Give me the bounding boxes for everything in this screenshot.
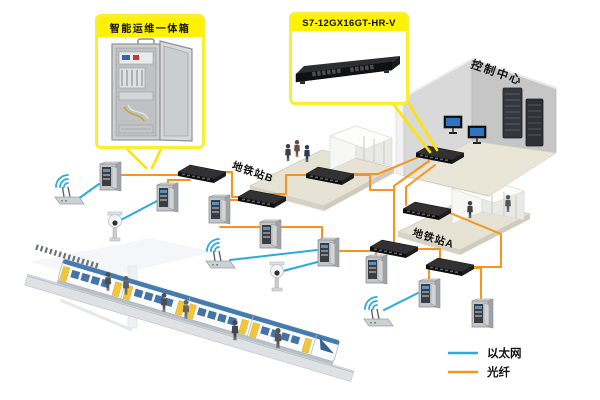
fiber-wire [470,268,481,298]
wifi-access-point-icon [364,297,393,326]
ethernet-line-swatch [448,350,478,356]
concourse-floor [30,238,214,280]
legend: 以太网 光纤 [448,343,522,381]
network-topology-diagram: 智能运维一体箱 S7-12GX16GT-HR-V [0,0,600,400]
cabinet-callout-label: 智能运维一体箱 [98,17,202,37]
wifi-access-point-icon [55,175,84,204]
switch-callout-label: S7-12GX16GT-HR-V [292,15,406,31]
rack-switch-icon [292,31,406,97]
ethernet-wire [230,250,317,260]
cabinet-callout: 智能运维一体箱 [95,14,205,149]
wall-mount-cabinet-icon [209,195,230,224]
ethernet-wire [78,184,99,199]
server-rack-icon [503,88,522,138]
legend-label-ethernet: 以太网 [487,345,522,361]
wall-mount-cabinet-icon [260,220,281,249]
ethernet-wire [384,293,418,310]
wall-mount-cabinet-icon [100,162,121,191]
metro-train-icon [25,250,361,381]
wall-mount-cabinet-icon [366,255,387,284]
ptz-camera-icon [270,262,284,291]
metro-station-scene [25,238,361,382]
fiber-line-swatch [448,369,478,375]
legend-item-ethernet: 以太网 [448,343,522,362]
leader-line [152,149,161,168]
leader-line [127,149,146,168]
wall-mount-cabinet-icon [100,37,200,149]
switch-callout-graphic [292,31,406,97]
cabinet-callout-graphic [98,37,202,149]
switch-callout: S7-12GX16GT-HR-V [289,12,409,105]
wall-mount-cabinet-icon [157,183,178,212]
legend-item-fiber: 光纤 [448,362,522,381]
server-rack-icon [526,99,543,146]
wall-mount-cabinet-icon [472,299,493,328]
legend-label-fiber: 光纤 [487,364,510,380]
wall-mount-cabinet-icon [318,238,339,267]
fiber-switch-icon [426,258,474,276]
wall-mount-cabinet-icon [419,279,440,308]
ptz-camera-icon [108,212,122,241]
wifi-access-point-icon [206,239,235,268]
ethernet-wire [117,201,157,222]
